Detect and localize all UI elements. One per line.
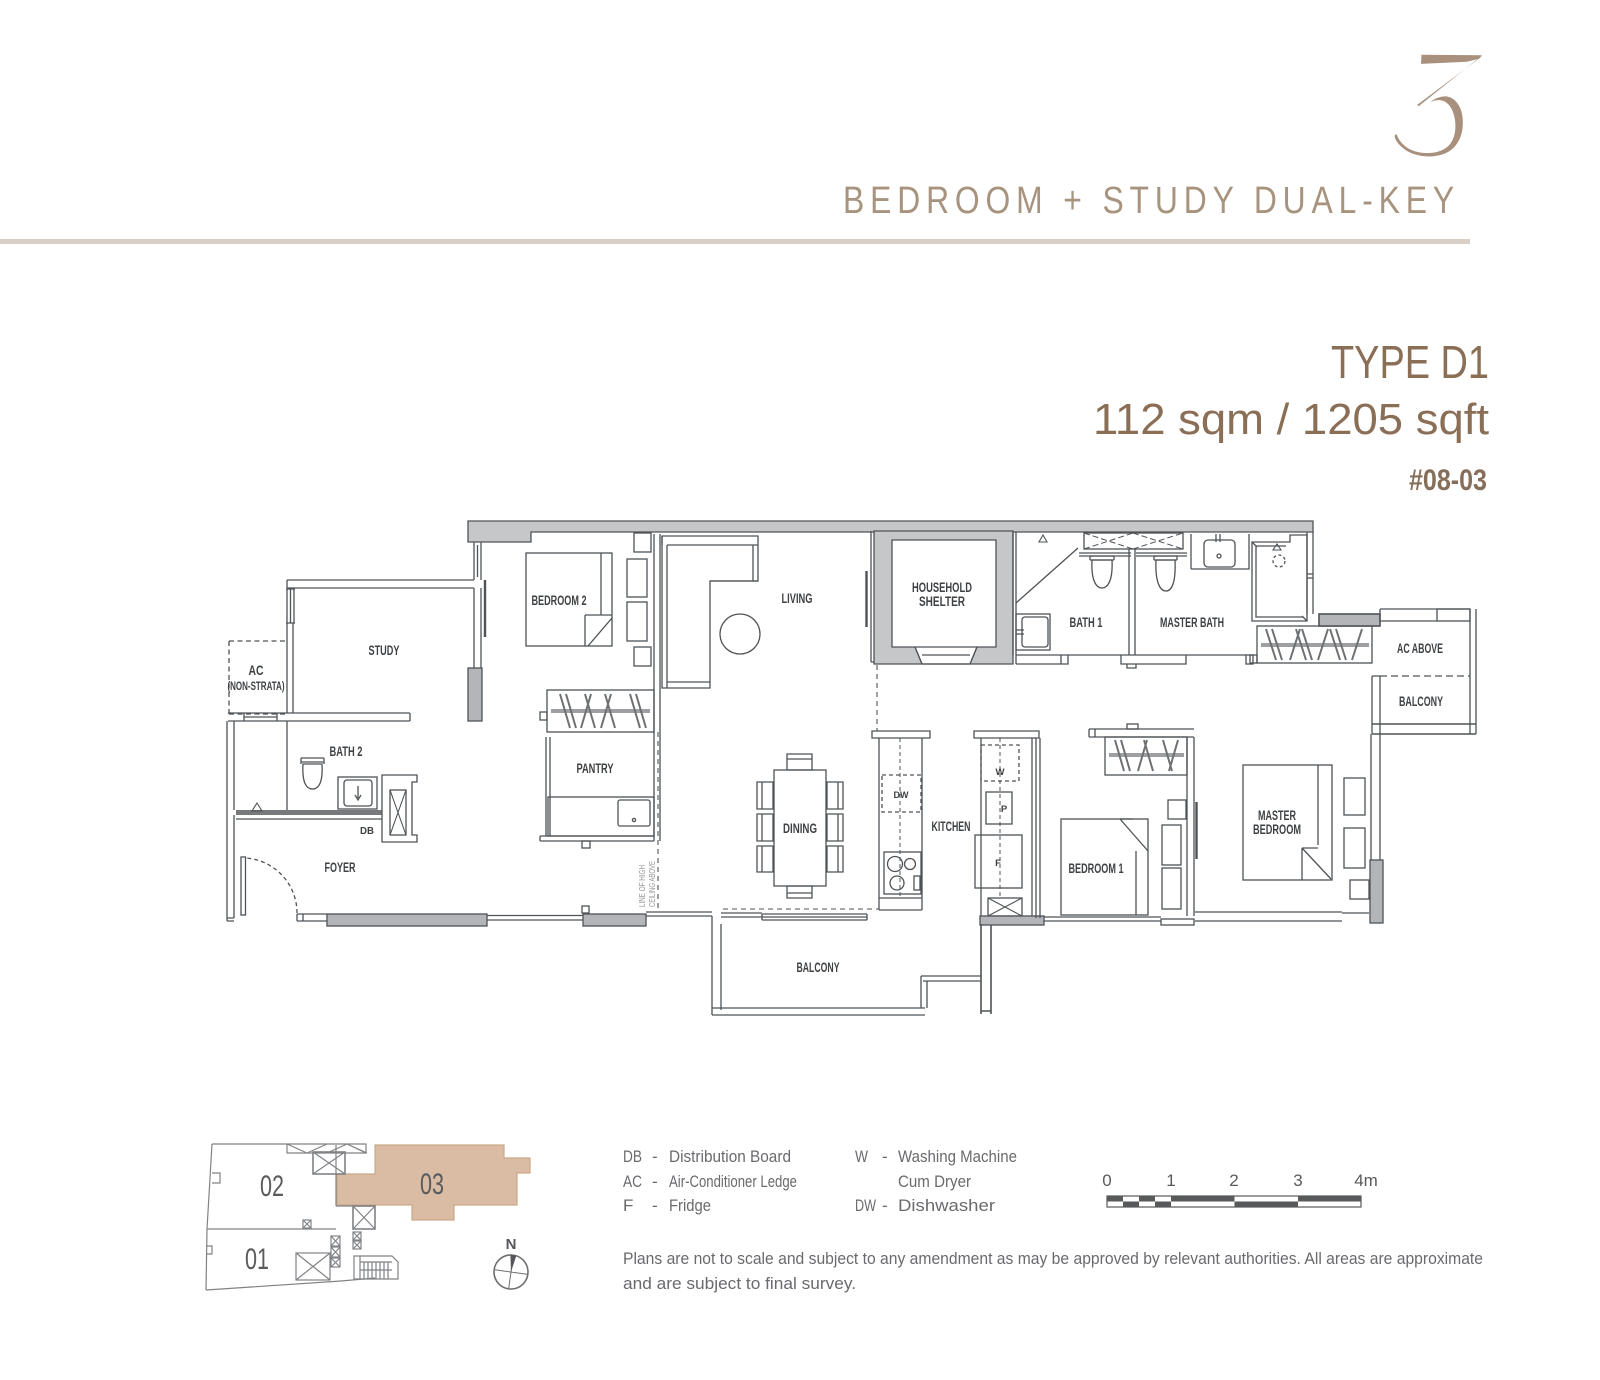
svg-text:BEDROOM + STUDY DUAL-KEY: BEDROOM + STUDY DUAL-KEY [843,180,1460,222]
svg-text:BEDROOM: BEDROOM [1253,822,1301,837]
svg-text:CEILING ABOVE: CEILING ABOVE [648,861,657,907]
svg-text:-: - [652,1172,658,1191]
svg-text:DW: DW [855,1196,876,1215]
svg-text:KITCHEN: KITCHEN [932,819,971,834]
svg-text:TYPE D1: TYPE D1 [1331,336,1489,388]
svg-text:-: - [652,1147,658,1166]
svg-text:BALCONY: BALCONY [797,960,840,975]
svg-text:PANTRY: PANTRY [577,761,614,776]
svg-text:LIVING: LIVING [782,591,813,606]
svg-text:MASTER BATH: MASTER BATH [1160,615,1224,630]
svg-text:DB: DB [360,826,374,837]
svg-text:Distribution Board: Distribution Board [669,1147,791,1166]
svg-text:AC: AC [623,1172,642,1191]
svg-text:DW: DW [894,790,909,801]
svg-text:P: P [1001,804,1008,815]
svg-text:DINING: DINING [783,821,817,836]
svg-text:Dishwasher: Dishwasher [898,1196,995,1215]
svg-text:BEDROOM 1: BEDROOM 1 [1069,861,1124,876]
svg-text:112 sqm / 1205 sqft: 112 sqm / 1205 sqft [1093,395,1489,444]
svg-text:Washing Machine: Washing Machine [898,1147,1017,1166]
svg-text:03: 03 [420,1168,444,1201]
svg-text:BATH 2: BATH 2 [330,744,363,759]
svg-text:and are subject to final surve: and are subject to final survey. [623,1274,856,1293]
svg-text:1: 1 [1166,1171,1175,1190]
svg-text:SHELTER: SHELTER [919,594,965,609]
svg-text:STUDY: STUDY [369,643,400,658]
svg-text:-: - [882,1196,888,1215]
svg-text:F: F [623,1196,633,1215]
svg-text:BATH 1: BATH 1 [1070,615,1103,630]
svg-text:2: 2 [1229,1171,1238,1190]
svg-text:Cum Dryer: Cum Dryer [898,1172,971,1191]
svg-text:#08-03: #08-03 [1409,464,1487,497]
svg-text:F: F [995,858,1001,869]
svg-text:MASTER: MASTER [1258,808,1296,823]
svg-text:N: N [506,1236,517,1253]
svg-text:HOUSEHOLD: HOUSEHOLD [912,580,972,595]
svg-text:3: 3 [1293,1171,1302,1190]
svg-text:BEDROOM 2: BEDROOM 2 [532,593,587,608]
svg-text:0: 0 [1102,1171,1111,1190]
svg-text:Plans are not to scale and sub: Plans are not to scale and subject to an… [623,1249,1483,1268]
svg-text:FOYER: FOYER [325,860,356,875]
svg-text:02: 02 [260,1170,284,1203]
svg-text:4m: 4m [1354,1171,1378,1190]
svg-text:W: W [855,1147,868,1166]
svg-text:Fridge: Fridge [669,1196,711,1215]
svg-text:W: W [996,767,1005,778]
svg-text:-: - [652,1196,658,1215]
svg-text:-: - [882,1147,888,1166]
svg-text:BALCONY: BALCONY [1399,694,1443,709]
svg-text:01: 01 [245,1243,269,1276]
svg-text:AC ABOVE: AC ABOVE [1397,641,1443,656]
svg-text:AC: AC [249,663,264,678]
svg-text:Air-Conditioner Ledge: Air-Conditioner Ledge [669,1172,797,1191]
svg-text:(NON-STRATA): (NON-STRATA) [228,681,285,693]
svg-text:LINE OF HIGH: LINE OF HIGH [638,865,647,907]
svg-text:DB: DB [623,1147,642,1166]
